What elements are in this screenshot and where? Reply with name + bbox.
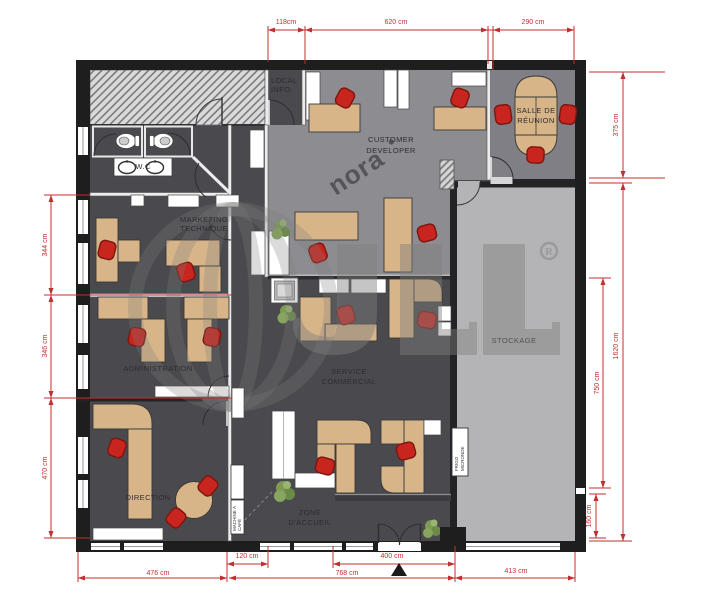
svg-text:290 cm: 290 cm: [522, 19, 545, 26]
svg-text:768 cm: 768 cm: [336, 570, 359, 577]
svg-text:SALLE DE: SALLE DE: [516, 106, 555, 115]
svg-text:400 cm: 400 cm: [381, 553, 404, 560]
svg-text:D'ACCUEIL: D'ACCUEIL: [289, 518, 332, 527]
svg-text:FRIGO: FRIGO: [454, 456, 459, 471]
svg-text:RÉUNION: RÉUNION: [517, 116, 554, 125]
svg-text:TECHNIQUE: TECHNIQUE: [180, 224, 228, 233]
svg-text:CAFÉ: CAFÉ: [236, 519, 242, 531]
svg-text:INFO.: INFO.: [271, 85, 293, 94]
svg-text:470 cm: 470 cm: [42, 456, 49, 479]
svg-text:COMMERCIAL: COMMERCIAL: [322, 377, 377, 386]
svg-text:LOCAL: LOCAL: [271, 76, 298, 85]
svg-text:R: R: [545, 246, 554, 258]
svg-text:W.C: W.C: [135, 162, 151, 171]
svg-text:344 cm: 344 cm: [42, 233, 49, 256]
svg-text:ZONE: ZONE: [299, 508, 321, 517]
svg-text:476 cm: 476 cm: [147, 570, 170, 577]
svg-text:120 cm: 120 cm: [236, 553, 259, 560]
svg-text:160 cm: 160 cm: [586, 504, 593, 527]
svg-text:620 cm: 620 cm: [385, 19, 408, 26]
svg-text:1620 cm: 1620 cm: [613, 332, 620, 359]
svg-text:375 cm: 375 cm: [613, 113, 620, 136]
svg-text:118cm: 118cm: [276, 19, 297, 26]
svg-text:750 cm: 750 cm: [594, 371, 601, 394]
svg-text:413 cm: 413 cm: [505, 568, 528, 575]
svg-text:SERVICE: SERVICE: [331, 367, 367, 376]
svg-text:346 cm: 346 cm: [42, 334, 49, 357]
svg-text:MARKETING: MARKETING: [180, 215, 228, 224]
svg-text:DIRECTION: DIRECTION: [126, 493, 171, 502]
svg-text:ADMINISTRATION: ADMINISTRATION: [123, 364, 192, 373]
svg-text:MICRONDE: MICRONDE: [460, 447, 465, 472]
